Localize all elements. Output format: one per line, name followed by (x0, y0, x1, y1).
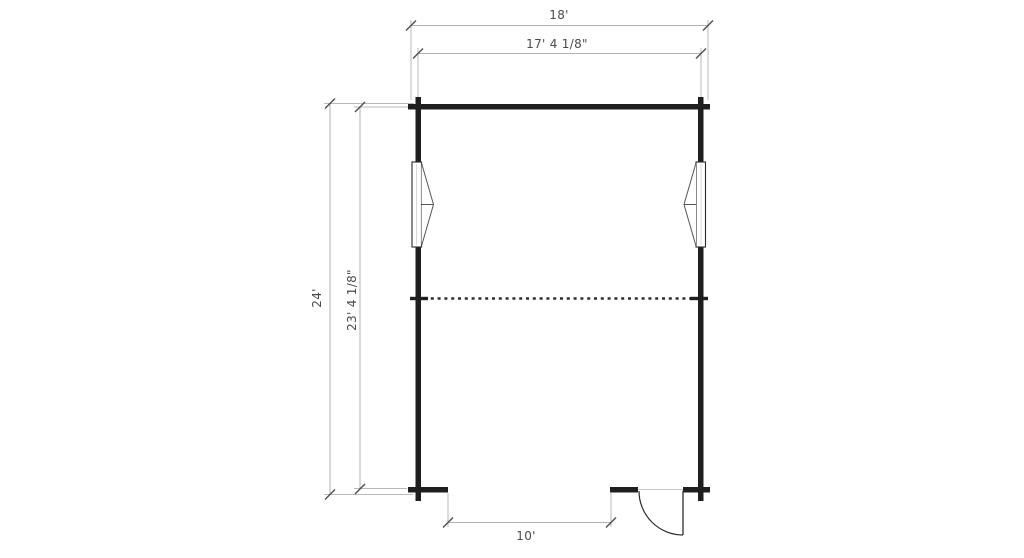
right-window (684, 162, 706, 247)
dim-label-front-opening: 10' (516, 529, 535, 543)
loft-edge-dashed-line (410, 297, 708, 300)
floor-plan-canvas: 18' 17' 4 1/8" 24' 23' 4 1/8" (0, 0, 1024, 554)
dim-height-interior: 23' 4 1/8" (345, 102, 365, 494)
dim-label-height-overall: 24' (310, 288, 324, 307)
floor-plan-page: 18' 17' 4 1/8" 24' 23' 4 1/8" (0, 0, 1024, 554)
dim-front-opening: 10' (443, 518, 616, 544)
dim-label-width-overall: 18' (549, 8, 568, 22)
top-wall (408, 104, 710, 110)
bottom-wall-segment-right (683, 487, 710, 493)
entry-door (638, 490, 683, 536)
dim-label-height-interior: 23' 4 1/8" (345, 269, 359, 331)
bottom-wall-segment-middle (610, 487, 638, 493)
door-swing-arc (639, 491, 683, 535)
left-window (412, 162, 434, 247)
loft-line-left-tick (410, 297, 428, 300)
loft-line-right-tick (690, 297, 708, 300)
dim-label-width-interior: 17' 4 1/8" (526, 37, 588, 51)
bottom-wall-segment-left (408, 487, 448, 493)
dim-width-interior: 17' 4 1/8" (413, 37, 706, 59)
dim-height-overall: 24' (310, 99, 335, 500)
extension-lines (324, 20, 708, 527)
dim-width-overall: 18' (406, 8, 713, 31)
